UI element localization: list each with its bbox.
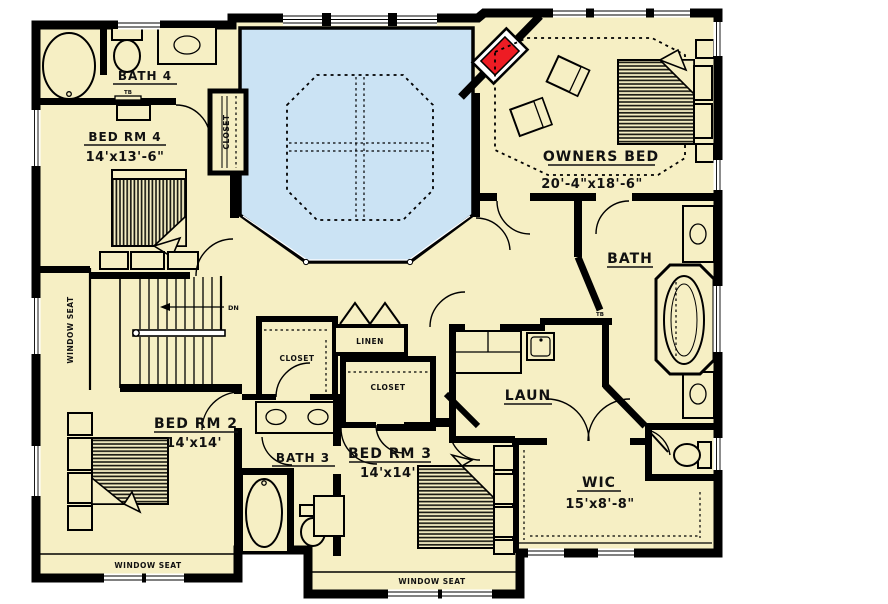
bedrm2-headboard xyxy=(68,438,92,470)
linen-label: LINEN xyxy=(356,337,384,346)
closet-bedrm4: CLOSET xyxy=(210,91,246,173)
bath-tub xyxy=(664,276,704,364)
bedrm3-headboard xyxy=(494,507,514,537)
bath3-label: BATH 3 xyxy=(276,451,330,465)
window-seat-left-label: WINDOW SEAT xyxy=(66,296,75,364)
bedrm4-bench xyxy=(131,252,164,269)
bedrm4-dims: 14'x13'-6" xyxy=(86,150,165,165)
bath4-towel-bar xyxy=(115,96,141,100)
bath4-tb-label: TB xyxy=(124,90,132,96)
owners-headboard xyxy=(694,66,712,100)
bedrm3-label: BED RM 3 xyxy=(348,446,432,462)
bath-sink-bottom xyxy=(690,384,706,404)
bedrm2-dims: 14'x14' xyxy=(166,436,222,451)
bedrm3-dresser xyxy=(314,496,344,536)
bedrm3-nightstand xyxy=(494,540,514,554)
bath4-sink xyxy=(174,36,200,54)
closet-bedrm3-label: CLOSET xyxy=(370,383,405,392)
laun-label: LAUN xyxy=(505,388,551,404)
floor-plan: BATH 4 TB BED RM 4 14'x13'-6" CLOSET xyxy=(0,0,888,604)
bedrm2-headboard xyxy=(68,473,92,503)
toilet-bowl xyxy=(674,444,700,466)
bedrm4-dresser xyxy=(117,105,150,120)
bath3-sink xyxy=(266,410,286,425)
bath4-label: BATH 4 xyxy=(118,69,172,83)
bath3-tub xyxy=(246,479,282,547)
bedrm4-bench xyxy=(168,252,198,269)
window-seat-bedrm2-label: WINDOW SEAT xyxy=(114,561,182,570)
bedrm3-headboard xyxy=(494,474,514,504)
wic-label: WIC xyxy=(582,475,616,491)
bath4-toilet-tank xyxy=(112,28,142,40)
bedrm3-dims: 14'x14' xyxy=(360,466,416,481)
floor-plan-canvas: BATH 4 TB BED RM 4 14'x13'-6" CLOSET xyxy=(0,0,888,604)
bath-sink-top xyxy=(690,224,706,244)
bedrm2-headboard xyxy=(68,413,92,435)
bath-label: BATH xyxy=(607,251,653,267)
closet-bedrm4-label: CLOSET xyxy=(222,114,231,149)
bedrm4-label: BED RM 4 xyxy=(88,130,161,144)
bedrm4-bench xyxy=(100,252,128,269)
owners-nightstand xyxy=(696,40,714,58)
stairs-dn-label: DN xyxy=(228,304,239,312)
owners-bed-dims: 20'-4"x18'-6" xyxy=(541,177,642,192)
stair-newel xyxy=(133,330,139,336)
open-to-below-area xyxy=(240,13,473,265)
bedrm2-nightstand xyxy=(68,506,92,530)
bedrm2-label: BED RM 2 xyxy=(154,416,238,432)
bath4-toilet-bowl xyxy=(114,40,140,72)
stair-rail xyxy=(133,330,225,336)
hall-tb-label: TB xyxy=(596,312,604,318)
wic-dims: 15'x8'-8" xyxy=(565,497,634,512)
window-seat-bedrm3-label: WINDOW SEAT xyxy=(398,577,466,586)
bedrm3-nightstand xyxy=(494,446,514,470)
owners-nightstand xyxy=(696,144,714,162)
closet-hall-label: CLOSET xyxy=(279,354,314,363)
bath4-tub xyxy=(43,33,95,99)
owners-headboard xyxy=(694,104,712,138)
bedrm4-headboard xyxy=(112,170,186,179)
bath3-sink xyxy=(308,410,328,425)
owners-bed-label: OWNERS BED xyxy=(543,149,659,165)
